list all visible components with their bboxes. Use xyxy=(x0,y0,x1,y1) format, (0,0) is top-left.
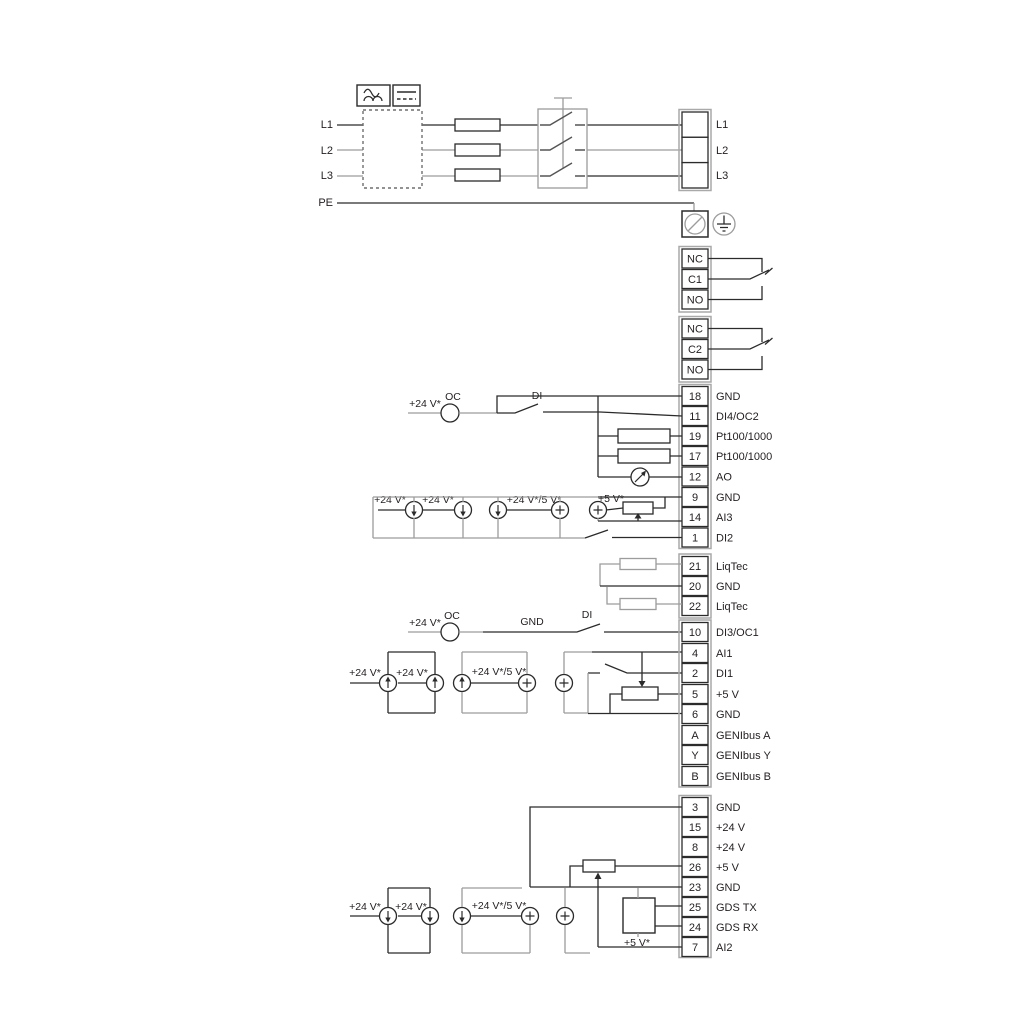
io1-num-7: 1 xyxy=(692,533,698,545)
out-label-l3: L3 xyxy=(716,170,728,182)
pe-screw-terminal-icon xyxy=(682,211,708,237)
dc-line-icon xyxy=(393,85,420,106)
io2-terminal-block: 10DI3/OC1 4AI1 2DI1 5+5 V 6GND AGENIbus … xyxy=(679,620,771,787)
io1-num-4: 12 xyxy=(689,472,701,484)
io2-num-5: A xyxy=(691,730,699,742)
terminal-out-l1 xyxy=(682,112,708,137)
io2-label-1: AI1 xyxy=(716,648,733,660)
main-switch xyxy=(538,98,587,188)
di4-oc2-wiring: +24 V* OC DI xyxy=(408,390,682,486)
input-label-l2: L2 xyxy=(321,145,333,157)
relay2-c2: C2 xyxy=(688,344,702,356)
wiring-diagram-page: L1 L2 L3 PE xyxy=(0,0,1024,1024)
io3-num-5: 25 xyxy=(689,902,701,914)
fuse-l1 xyxy=(455,119,500,131)
terminal-out-l2 xyxy=(682,137,708,162)
relay2-block: NC C2 NO xyxy=(679,317,773,383)
voltage-source-icon xyxy=(590,502,607,519)
io1-num-1: 11 xyxy=(689,411,700,423)
v24-label-4a: +24 V* xyxy=(349,667,381,679)
di3-oc1-wiring: +24 V* OC GND DI xyxy=(408,609,682,641)
input-label-l3: L3 xyxy=(321,170,333,182)
gnd3-wire xyxy=(530,807,682,887)
fuse-l3 xyxy=(455,169,500,181)
current-source-icon xyxy=(454,908,471,925)
pot-feed xyxy=(606,508,623,510)
current-source-icon xyxy=(427,675,444,692)
mains-terminal-block: L1 L2 L3 xyxy=(679,110,728,191)
di1-switch xyxy=(588,664,682,673)
current-source-icon xyxy=(490,502,507,519)
v24-label-5b: +24 V* xyxy=(395,901,427,913)
ai2-gds-wiring: +24 V* +24 V* +24 V*/5 V* +5 V* xyxy=(349,807,682,953)
relay1-no: NO xyxy=(687,295,704,307)
wiper-arrow-icon xyxy=(595,873,602,880)
io1-label-6: AI3 xyxy=(716,512,733,524)
v24-5-label-5: +24 V*/5 V* xyxy=(472,900,527,912)
io3-label-7: AI2 xyxy=(716,942,733,954)
pt100-resistor-1 xyxy=(618,429,670,443)
liqtec-label-2: LiqTec xyxy=(716,601,748,613)
relay2-no: NO xyxy=(687,365,704,377)
ai3-input-wiring: +24 V* +24 V* +24 V*/5 V* +5 V* xyxy=(373,493,682,538)
liqtec-num-0: 21 xyxy=(689,561,701,573)
relay2-nc: NC xyxy=(687,324,703,336)
voltage-source-icon xyxy=(522,908,539,925)
di2-switch xyxy=(585,530,682,538)
io2-num-7: B xyxy=(691,771,698,783)
io2-label-6: GENIbus Y xyxy=(716,750,771,762)
current-source-icon xyxy=(380,908,397,925)
liqtec-terminal-block: 21LiqTec 20GND 22LiqTec xyxy=(679,554,748,618)
io3-num-0: 3 xyxy=(692,802,698,814)
io3-label-6: GDS RX xyxy=(716,922,759,934)
io3-num-7: 7 xyxy=(692,942,698,954)
current-source-icon xyxy=(406,502,423,519)
voltage-source-icon xyxy=(552,502,569,519)
wiper-arrow-icon xyxy=(639,681,646,687)
wiring-diagram: L1 L2 L3 PE xyxy=(0,0,1024,1024)
di-label-3: DI xyxy=(582,609,593,621)
pt100-resistor-2 xyxy=(618,449,670,463)
analog-output-gauge-icon xyxy=(631,468,649,486)
liqtec-wiring xyxy=(600,559,682,610)
relay1-nc: NC xyxy=(687,254,703,266)
current-source-icon xyxy=(380,675,397,692)
liqtec-num-2: 22 xyxy=(689,601,701,613)
potentiometer-ai1 xyxy=(622,687,658,700)
io1-label-0: GND xyxy=(716,391,741,403)
io1-num-0: 18 xyxy=(689,391,701,403)
out-label-l1: L1 xyxy=(716,119,728,131)
io1-num-3: 17 xyxy=(689,451,701,463)
v24-label-4b: +24 V* xyxy=(396,667,428,679)
potentiometer-5v xyxy=(583,860,615,872)
io1-label-1: DI4/OC2 xyxy=(716,411,759,423)
voltage-source-icon xyxy=(557,908,574,925)
io1-num-5: 9 xyxy=(692,492,698,504)
io1-num-2: 19 xyxy=(689,431,701,443)
io2-label-7: GENIbus B xyxy=(716,771,771,783)
io1-label-2: Pt100/1000 xyxy=(716,431,772,443)
io1-label-7: DI2 xyxy=(716,533,733,545)
io3-num-3: 26 xyxy=(689,862,701,874)
io3-num-6: 24 xyxy=(689,922,701,934)
gnd18-rail xyxy=(497,396,682,413)
ai1-rail xyxy=(592,652,682,684)
io2-num-4: 6 xyxy=(692,709,698,721)
io3-label-5: GDS TX xyxy=(716,902,757,914)
io3-label-4: GND xyxy=(716,882,741,894)
relay1-block: NC C1 NO xyxy=(679,247,773,313)
io3-terminal-block: 3GND 15+24 V 8+24 V 26+5 V 23GND 25GDS T… xyxy=(679,796,759,958)
liqtec-label-0: LiqTec xyxy=(716,561,748,573)
terminal-out-l3 xyxy=(682,163,708,188)
pot-to-gnd xyxy=(653,497,665,508)
open-collector-icon xyxy=(441,623,459,641)
v24-label-5a: +24 V* xyxy=(349,901,381,913)
potentiometer-ai3 xyxy=(623,502,653,514)
liqtec-num-1: 20 xyxy=(689,581,701,593)
io2-num-6: Y xyxy=(691,750,699,762)
io1-label-3: Pt100/1000 xyxy=(716,451,772,463)
input-label-pe: PE xyxy=(318,197,333,209)
io2-num-3: 5 xyxy=(692,689,698,701)
v24-label-2a: +24 V* xyxy=(374,494,406,506)
liqtec-label-1: GND xyxy=(716,581,741,593)
io3-label-0: GND xyxy=(716,802,741,814)
v24-label-3: +24 V* xyxy=(409,617,441,629)
io1-num-6: 14 xyxy=(689,512,701,524)
fuse-l2 xyxy=(455,144,500,156)
open-collector-icon xyxy=(441,404,459,422)
out-label-l2: L2 xyxy=(716,145,728,157)
io3-label-2: +24 V xyxy=(716,842,746,854)
current-source-icon xyxy=(454,675,471,692)
gnd-label-3: GND xyxy=(520,616,544,628)
io1-label-4: AO xyxy=(716,472,732,484)
io2-label-5: GENIbus A xyxy=(716,730,771,742)
voltage-source-icon xyxy=(556,675,573,692)
io2-label-3: +5 V xyxy=(716,689,740,701)
bracket-2 xyxy=(462,888,530,953)
v24-5-label-4: +24 V*/5 V* xyxy=(472,666,527,678)
gds-sensor-box xyxy=(623,888,682,937)
io2-label-4: GND xyxy=(716,709,741,721)
io3-label-3: +5 V xyxy=(716,862,740,874)
io2-label-2: DI1 xyxy=(716,668,733,680)
io2-num-1: 4 xyxy=(692,648,698,660)
relay2-wiring xyxy=(708,329,773,370)
v24-label-2b: +24 V* xyxy=(422,494,454,506)
io2-num-2: 2 xyxy=(692,668,698,680)
di3-switch xyxy=(483,624,682,632)
io3-label-1: +24 V xyxy=(716,822,746,834)
io2-num-0: 10 xyxy=(689,627,701,639)
liqtec-resistor-1 xyxy=(620,559,656,570)
emc-filter-box xyxy=(363,110,422,188)
di-switch xyxy=(497,404,682,416)
oc-label-3: OC xyxy=(444,610,460,622)
io3-num-2: 8 xyxy=(692,842,698,854)
current-source-icon xyxy=(422,908,439,925)
v24-label-1: +24 V* xyxy=(409,398,441,410)
liqtec-resistor-2 xyxy=(620,599,656,610)
io1-terminal-block: 18GND 11DI4/OC2 19Pt100/1000 17Pt100/100… xyxy=(679,385,772,549)
gds-tx-rx-wires xyxy=(655,906,682,926)
ac-wave-icon xyxy=(357,85,390,106)
io1-label-5: GND xyxy=(716,492,741,504)
io3-num-1: 15 xyxy=(689,822,701,834)
oc-label-1: OC xyxy=(445,391,461,403)
mains-input-section: L1 L2 L3 PE xyxy=(318,85,735,237)
ai1-input-wiring: +24 V* +24 V* +24 V*/5 V* xyxy=(349,652,682,714)
relay1-wiring xyxy=(708,259,773,300)
voltage-source-icon xyxy=(519,675,536,692)
current-source-icon xyxy=(455,502,472,519)
io3-num-4: 23 xyxy=(689,882,701,894)
input-label-l1: L1 xyxy=(321,119,333,131)
io2-label-0: DI3/OC1 xyxy=(716,627,759,639)
relay1-c1: C1 xyxy=(688,274,702,286)
earth-ground-icon xyxy=(713,213,735,235)
